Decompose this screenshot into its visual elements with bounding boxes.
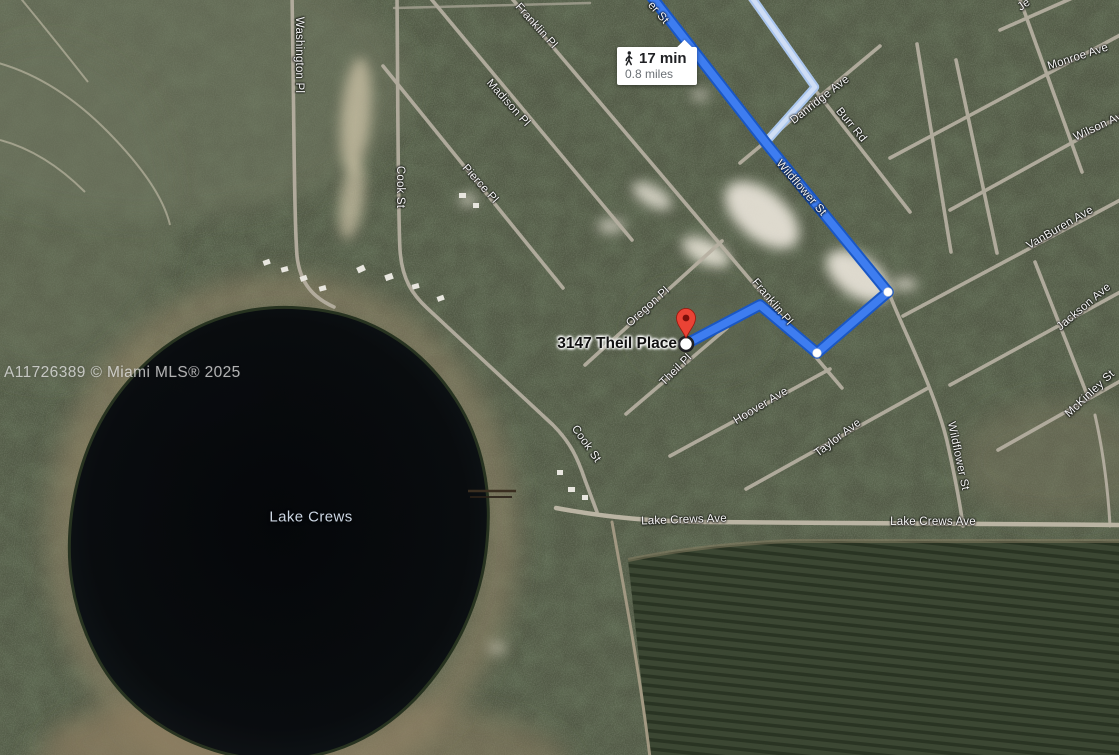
route-duration-badge[interactable]: 17 min 0.8 miles [617,47,697,85]
route-waypoint-dot [813,349,822,358]
route-waypoint-dot [884,288,893,297]
lake-name-label: Lake Crews [269,509,352,526]
orchard-field [628,541,1119,755]
route-distance: 0.8 miles [625,67,691,81]
mls-attribution-watermark: A11726389 © Miami MLS® 2025 [4,364,241,382]
route-end-circle [679,337,693,351]
route-duration: 17 min [639,50,687,67]
destination-address-label: 3147 Theil Place [557,335,677,353]
walking-icon [623,51,635,67]
map-canvas[interactable]: Washington PlCook StMadison PlPierce PlF… [0,0,1119,755]
